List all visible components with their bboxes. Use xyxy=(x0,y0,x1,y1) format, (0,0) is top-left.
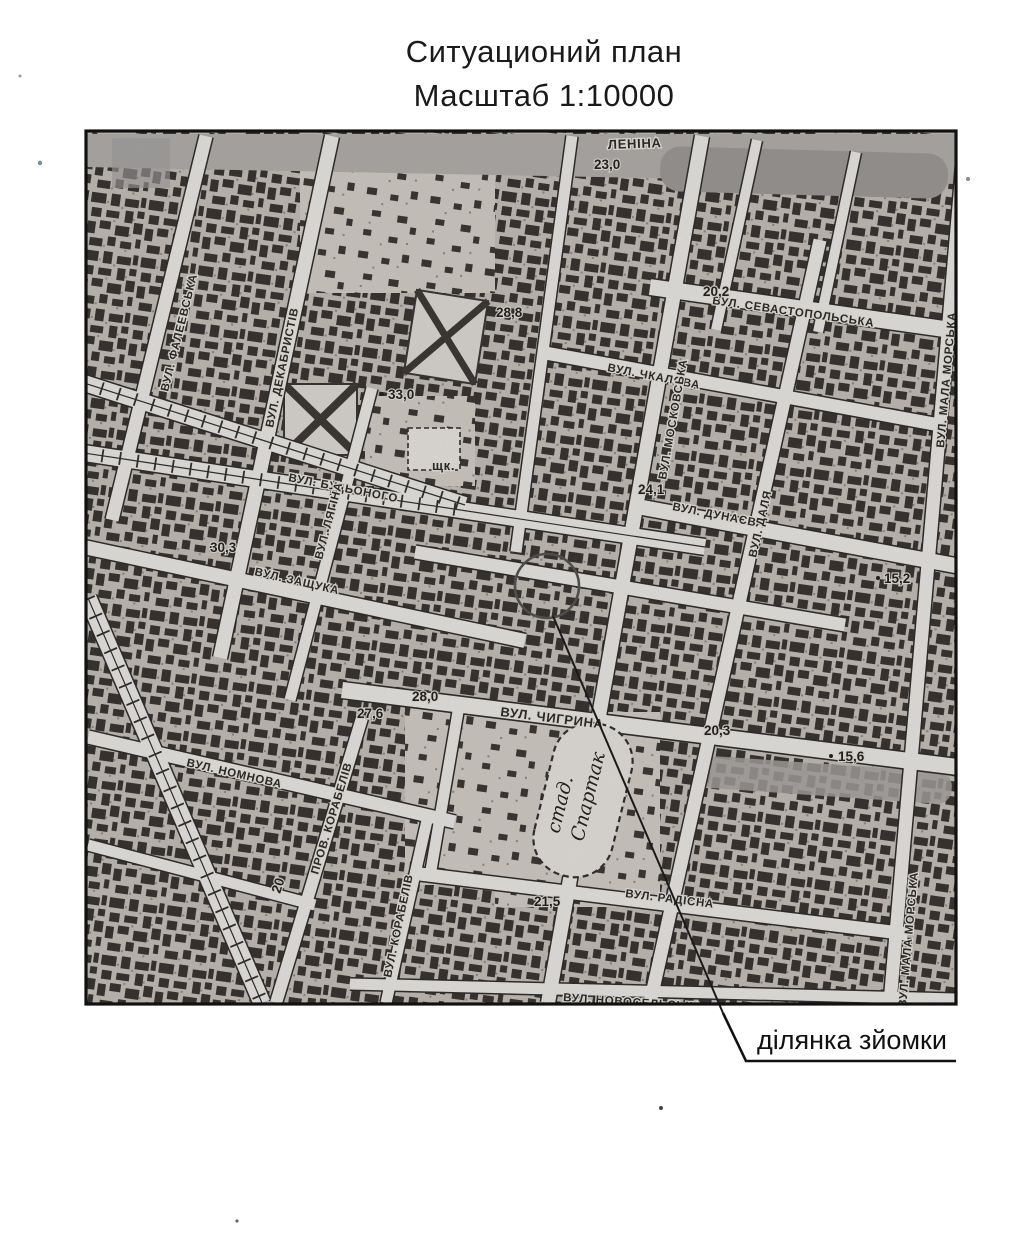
map-svg: стад. Спартак ЛЕНІНА ВУЛ. СЕВАСТОПОЛЬСЬК… xyxy=(0,0,1024,1234)
callout: ділянка зйомки xyxy=(723,1013,956,1061)
map-interior: стад. Спартак ЛЕНІНА ВУЛ. СЕВАСТОПОЛЬСЬК… xyxy=(84,131,964,1014)
callout-label: ділянка зйомки xyxy=(757,1025,947,1055)
scan-grain xyxy=(86,131,956,1004)
